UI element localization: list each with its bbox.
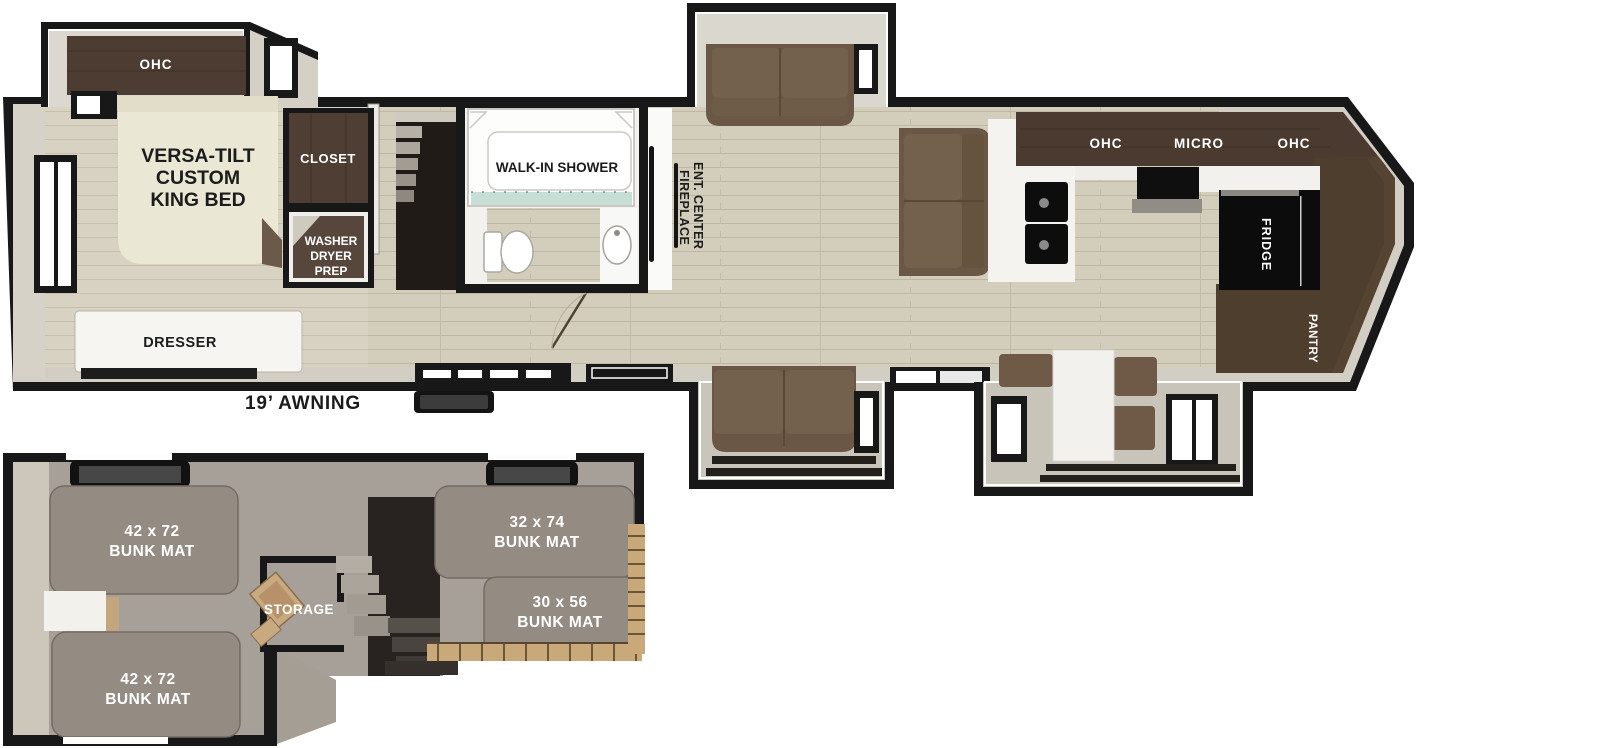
svg-text:DRESSER: DRESSER (143, 335, 217, 351)
svg-text:BUNK MAT: BUNK MAT (494, 534, 580, 551)
svg-text:OHC: OHC (140, 57, 173, 72)
svg-text:BUNK MAT: BUNK MAT (105, 691, 191, 708)
svg-text:CLOSET: CLOSET (300, 151, 356, 166)
svg-text:30 x 56: 30 x 56 (532, 594, 587, 611)
svg-text:PANTRY: PANTRY (1306, 314, 1318, 363)
svg-text:VERSA-TILT: VERSA-TILT (141, 145, 254, 167)
svg-text:42 x 72: 42 x 72 (124, 523, 179, 540)
svg-text:ENT. CENTER: ENT. CENTER (691, 162, 705, 249)
svg-text:FRIDGE: FRIDGE (1259, 218, 1273, 271)
svg-text:WALK-IN SHOWER: WALK-IN SHOWER (496, 160, 618, 175)
svg-text:KING BED: KING BED (150, 189, 245, 211)
svg-text:STORAGE: STORAGE (264, 602, 334, 617)
svg-text:BUNK MAT: BUNK MAT (517, 614, 603, 631)
svg-text:19’ AWNING: 19’ AWNING (245, 393, 361, 414)
svg-text:CUSTOM: CUSTOM (156, 167, 240, 189)
svg-text:BUNK MAT: BUNK MAT (109, 543, 195, 560)
svg-text:42 x 72: 42 x 72 (120, 671, 175, 688)
svg-text:PREP: PREP (315, 264, 348, 278)
svg-text:FIREPLACE: FIREPLACE (677, 170, 691, 245)
svg-text:MICRO: MICRO (1174, 136, 1224, 151)
svg-text:OHC: OHC (1278, 136, 1311, 151)
svg-text:OHC: OHC (1090, 136, 1123, 151)
svg-text:32 x 74: 32 x 74 (509, 514, 564, 531)
svg-text:WASHER: WASHER (305, 234, 358, 248)
svg-text:DRYER: DRYER (310, 249, 352, 263)
